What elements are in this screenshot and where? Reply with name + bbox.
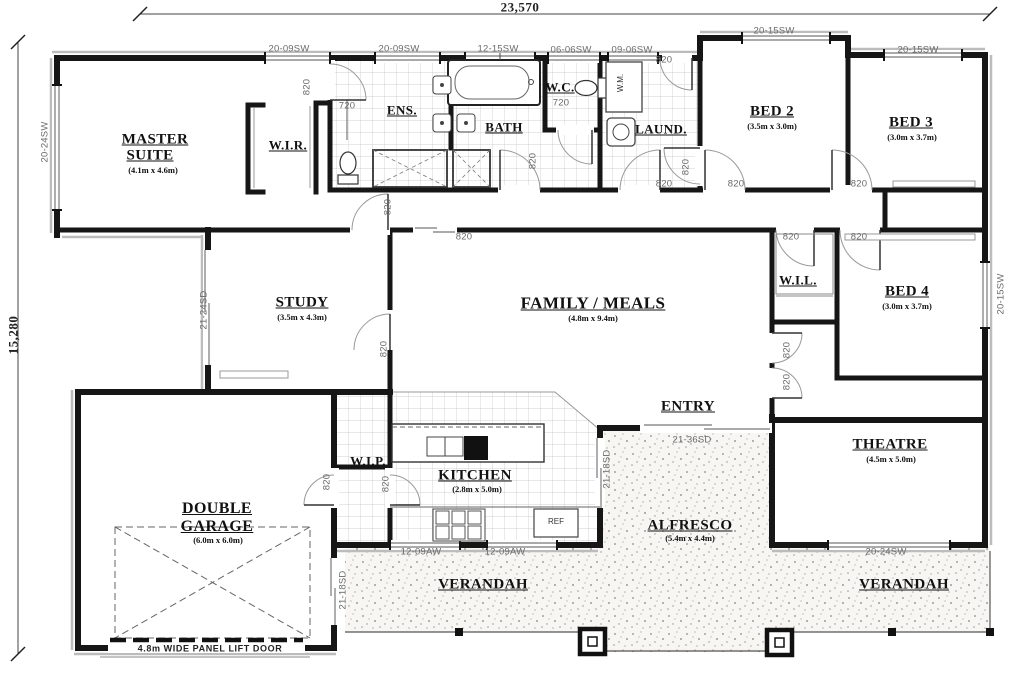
room-label-verandah-right: VERANDAH (859, 578, 949, 593)
room-size-bed4: (3.0m x 3.7m) (882, 302, 932, 311)
room-label-garage-line1: DOUBLE (182, 501, 252, 517)
door-label-d7: 820 (383, 199, 393, 215)
room-label-garage-line2: GARAGE (181, 519, 254, 535)
room-size-theatre: (4.5m x 5.0m) (866, 455, 916, 464)
room-size-bed3: (3.0m x 3.7m) (887, 133, 937, 142)
floor-plan: 23,570 15,280 MASTER SUITE (4.1m x 4.6m)… (0, 0, 1030, 682)
door-label-d16: 820 (782, 374, 792, 390)
window-label-w15: 21-18SD (602, 450, 612, 489)
room-label-bed2: BED 2 (750, 105, 794, 120)
window-label-w10: 20-15SW (996, 273, 1006, 314)
garage-door-label: 4.8m WIDE PANEL LIFT DOOR (138, 645, 283, 654)
room-label-family-meals: FAMILY / MEALS (521, 295, 666, 312)
window-label-w7: 20-15SW (897, 45, 938, 55)
room-label-alfresco: ALFRESCO (648, 519, 733, 534)
kitchen-island-icon (392, 424, 544, 462)
door-label-d18: 820 (381, 476, 391, 492)
door-label-d9: 820 (728, 179, 744, 189)
dimension-width: 23,570 (501, 1, 540, 14)
window-label-w1: 20-09SW (268, 44, 309, 54)
window-label-w16: 21-18SD (338, 571, 348, 610)
room-size-garage: (6.0m x 6.0m) (193, 536, 243, 545)
window-label-w11: 12-09AW (401, 547, 442, 557)
room-label-ens: ENS. (387, 104, 417, 117)
room-size-kitchen: (2.8m x 5.0m) (452, 485, 502, 494)
door-label-d6: 820 (681, 159, 691, 175)
door-label-d8: 820 (656, 179, 672, 189)
room-label-verandah-left: VERANDAH (438, 578, 528, 593)
dimension-height: 15,280 (7, 316, 20, 355)
fridge-label: REF (548, 518, 564, 526)
room-label-master-line1: MASTER (122, 133, 189, 148)
window-label-w2: 20-09SW (378, 44, 419, 54)
room-label-wip: W.I.P. (350, 455, 386, 468)
floor-textures (330, 58, 990, 652)
door-label-d14: 820 (379, 341, 389, 357)
window-label-w12: 12-09AW (485, 547, 526, 557)
window-label-w3: 12-15SW (477, 44, 518, 54)
door-label-d1: 820 (302, 79, 312, 95)
room-label-wc: W.C. (545, 81, 574, 94)
window-label-w8: 20-24SW (40, 121, 50, 162)
room-label-wir: W.I.R. (269, 139, 307, 152)
door-label-d5: 820 (528, 153, 538, 169)
door-label-d10: 820 (851, 179, 867, 189)
room-label-master-line2: SUITE (126, 149, 173, 164)
room-label-wil: W.I.L. (779, 274, 817, 287)
window-label-w14: 21-36SD (673, 435, 712, 445)
window-label-w13: 20-24SW (865, 547, 906, 557)
room-label-bed4: BED 4 (885, 285, 929, 300)
garage-markings (100, 527, 310, 657)
room-size-bed2: (3.5m x 3.0m) (747, 122, 797, 131)
room-label-theatre: THEATRE (852, 438, 927, 453)
room-label-study: STUDY (276, 296, 329, 311)
door-label-d11: 820 (783, 232, 799, 242)
room-label-bath: BATH (485, 121, 522, 134)
window-label-w4: 06-06SW (550, 45, 591, 55)
room-size-master: (4.1m x 4.6m) (128, 166, 178, 175)
washing-machine-label: W.M. (617, 74, 625, 92)
window-label-w6: 20-15SW (753, 26, 794, 36)
room-label-bed3: BED 3 (889, 116, 933, 131)
door-label-d13: 820 (456, 232, 472, 242)
door-label-d12: 820 (851, 232, 867, 242)
door-label-d2: 720 (339, 101, 355, 111)
room-size-study: (3.5m x 4.3m) (277, 313, 327, 322)
room-size-alfresco: (5.4m x 4.4m) (665, 534, 715, 543)
window-label-w9: 21-24SD (199, 291, 209, 330)
door-label-d4: 820 (656, 55, 672, 65)
room-label-laundry: LAUND. (635, 123, 687, 136)
door-label-d15: 820 (782, 342, 792, 358)
room-size-family-meals: (4.8m x 9.4m) (568, 314, 618, 323)
door-label-d3: 720 (553, 98, 569, 108)
door-label-d17: 820 (322, 474, 332, 490)
room-label-entry: ENTRY (661, 400, 715, 415)
window-label-w5: 09-06SW (611, 45, 652, 55)
bathtub-icon (448, 53, 540, 105)
room-label-kitchen: KITCHEN (438, 469, 512, 484)
